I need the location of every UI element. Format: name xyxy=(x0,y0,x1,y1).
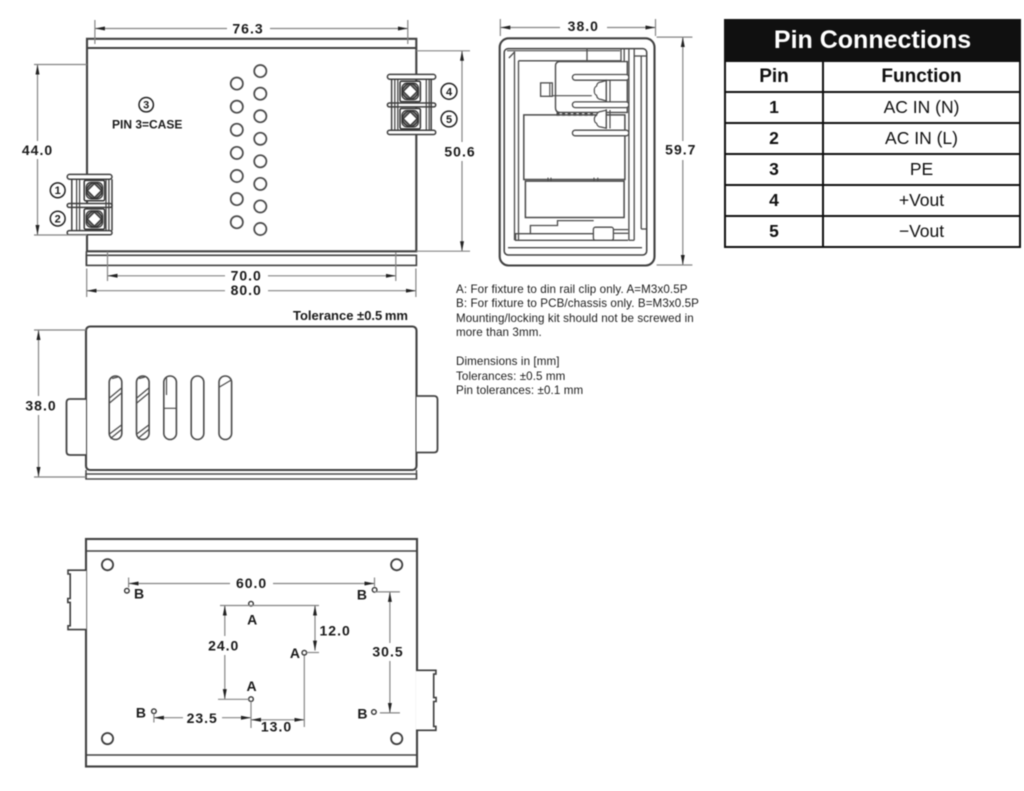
svg-text:12.0: 12.0 xyxy=(320,623,351,639)
svg-text:PIN 3=CASE: PIN 3=CASE xyxy=(112,118,182,132)
svg-text:80.0: 80.0 xyxy=(231,282,262,298)
svg-text:50.6: 50.6 xyxy=(444,144,475,160)
svg-text:24.0: 24.0 xyxy=(208,637,239,653)
svg-text:44.0: 44.0 xyxy=(22,142,53,158)
svg-text:2: 2 xyxy=(55,214,61,226)
svg-text:A: A xyxy=(247,678,258,694)
svg-text:A: A xyxy=(247,612,258,628)
svg-text:B: B xyxy=(134,586,145,602)
svg-text:59.7: 59.7 xyxy=(665,142,696,158)
svg-text:70.0: 70.0 xyxy=(231,267,262,283)
svg-text:30.5: 30.5 xyxy=(372,644,403,660)
svg-text:38.0: 38.0 xyxy=(25,398,56,414)
svg-text:60.0: 60.0 xyxy=(236,575,267,591)
svg-text:3: 3 xyxy=(143,100,149,112)
svg-text:23.5: 23.5 xyxy=(187,710,218,726)
svg-text:A: A xyxy=(290,645,301,661)
svg-text:38.0: 38.0 xyxy=(568,18,599,34)
svg-text:B: B xyxy=(357,706,368,722)
svg-text:5: 5 xyxy=(446,114,452,126)
svg-text:B: B xyxy=(136,705,147,721)
svg-text:B: B xyxy=(357,587,368,603)
svg-text:4: 4 xyxy=(446,86,453,98)
svg-text:13.0: 13.0 xyxy=(261,719,292,735)
svg-text:76.3: 76.3 xyxy=(232,21,263,37)
svg-text:Tolerance ±0.5 mm: Tolerance ±0.5 mm xyxy=(293,308,408,323)
svg-text:1: 1 xyxy=(55,185,61,197)
